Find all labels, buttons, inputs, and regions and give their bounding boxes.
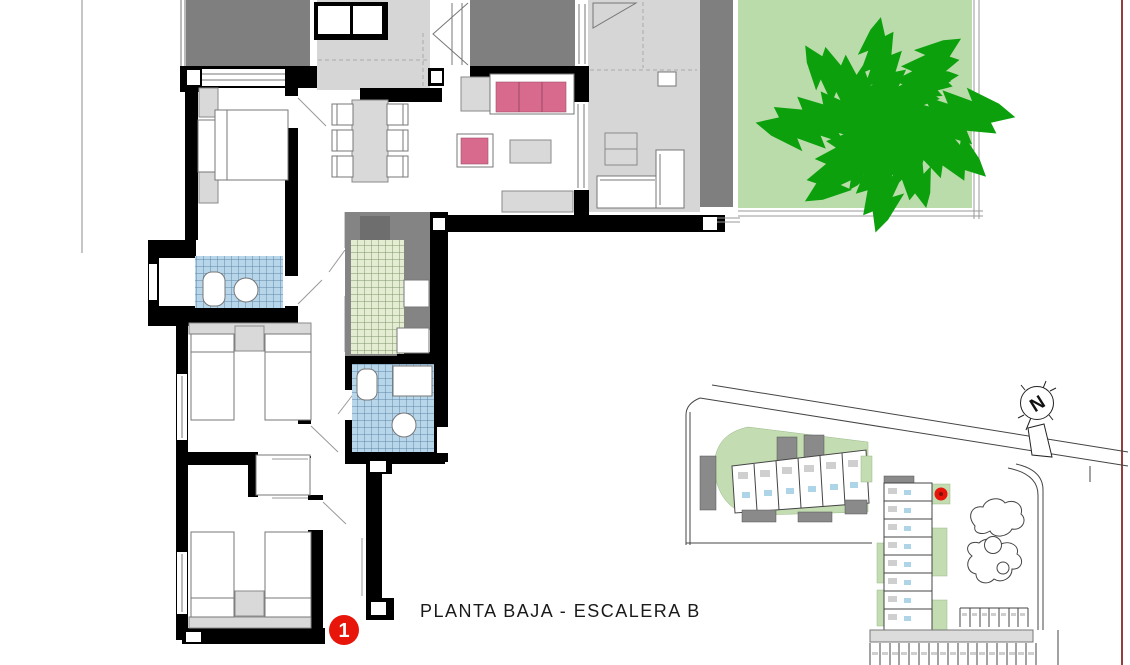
door-swing xyxy=(329,250,345,272)
toilet xyxy=(203,272,225,306)
single-bed xyxy=(265,334,311,420)
sofa xyxy=(496,82,566,112)
kitchen-tiles xyxy=(351,240,404,354)
closet xyxy=(256,455,310,495)
single-bed xyxy=(265,532,311,617)
door-swing xyxy=(298,280,322,304)
kitchen-appliance xyxy=(360,216,390,242)
porch-side-band xyxy=(700,0,733,207)
outdoor-table xyxy=(605,133,637,149)
terrace-2 xyxy=(470,0,575,67)
building-block-b xyxy=(861,456,950,630)
double-bed xyxy=(215,110,288,180)
shower xyxy=(393,366,432,396)
unit-badge: 1 xyxy=(329,615,359,645)
sideboard xyxy=(502,191,573,212)
toilet xyxy=(357,369,377,400)
bedroom-3 xyxy=(189,532,311,628)
pillar-window xyxy=(187,70,200,85)
plan-canvas: N 1 PLANTA BAJA - ESCALERA B xyxy=(0,0,1130,665)
site-plan: N xyxy=(686,381,1128,665)
bathroom-2 xyxy=(352,364,434,452)
side-table xyxy=(461,77,490,111)
dining-table xyxy=(352,100,388,182)
block-b-outline xyxy=(884,483,932,630)
wardrobe-door xyxy=(318,6,350,34)
headboard-shelf xyxy=(189,617,311,628)
building-block-a xyxy=(700,427,869,522)
armchair xyxy=(461,138,488,164)
hall-closet xyxy=(256,455,310,498)
outdoor-table xyxy=(605,149,637,165)
bathroom1-window xyxy=(149,264,157,300)
door-swing xyxy=(311,426,338,452)
single-bed xyxy=(191,334,234,420)
closet xyxy=(198,120,215,172)
outdoor-bench xyxy=(597,176,659,208)
kitchen-stove xyxy=(397,328,429,353)
north-compass: N xyxy=(1018,381,1056,457)
bedroom2-door xyxy=(298,424,311,456)
floor-plan-page: N 1 PLANTA BAJA - ESCALERA B xyxy=(0,0,1130,665)
bedroom3-door xyxy=(308,500,323,530)
entry-door xyxy=(433,3,468,65)
nightstand xyxy=(235,591,264,616)
bedroom-1 xyxy=(198,88,288,203)
unit-badge-number: 1 xyxy=(338,620,349,642)
wardrobe-door xyxy=(353,6,382,34)
terrace-1 xyxy=(186,0,310,68)
kitchen-sink xyxy=(404,280,429,307)
door-swing xyxy=(323,502,346,524)
washbasin xyxy=(392,413,416,437)
bathroom1-door xyxy=(285,276,298,306)
plan-title: PLANTA BAJA - ESCALERA B xyxy=(420,601,701,621)
porch-hatch xyxy=(658,72,676,86)
bedroom1-window xyxy=(202,69,285,86)
nightstand xyxy=(235,326,264,351)
porch-window xyxy=(575,102,588,190)
swimming-pool xyxy=(968,499,1024,583)
single-bed xyxy=(191,532,234,617)
coffee-table xyxy=(510,140,551,163)
parking-canopy xyxy=(870,630,1033,642)
garden xyxy=(738,0,1015,235)
door-swing xyxy=(298,98,326,126)
washbasin xyxy=(234,278,258,302)
compass-tail xyxy=(1028,424,1052,457)
bedroom-2 xyxy=(189,323,311,420)
bathroom-1 xyxy=(195,256,283,308)
kitchen xyxy=(345,212,430,356)
